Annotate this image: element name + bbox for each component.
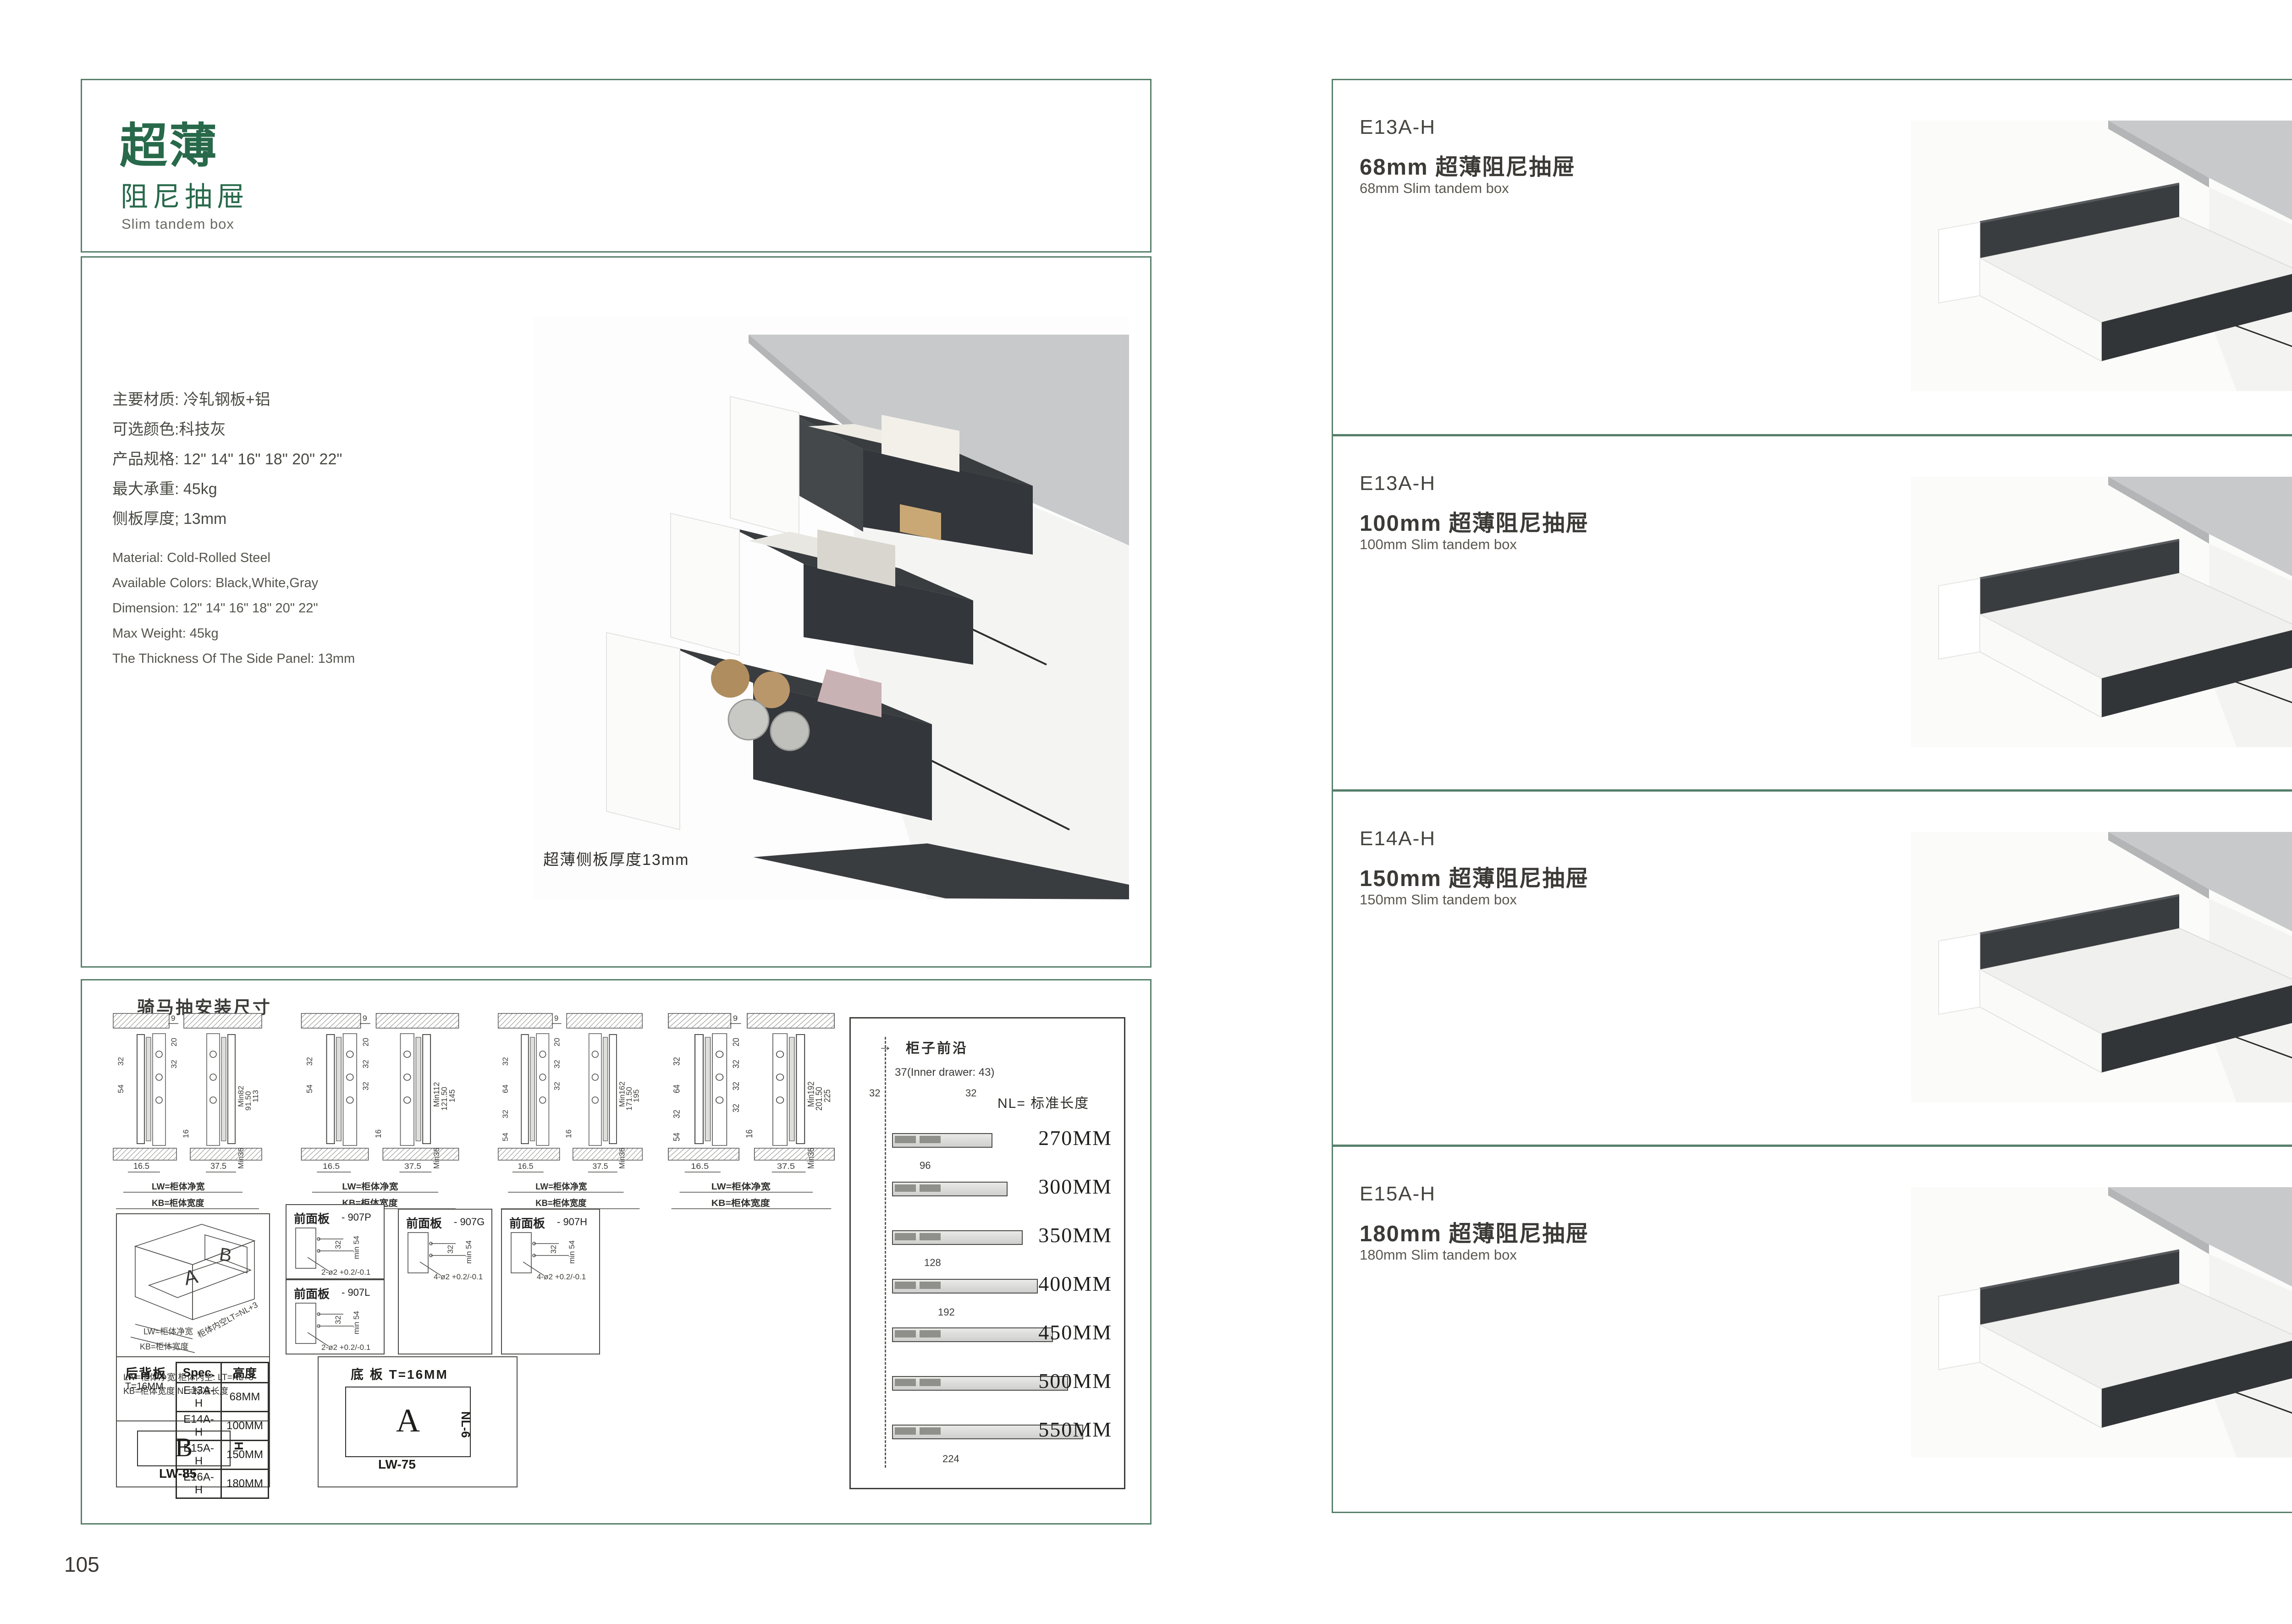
cabinet-wireframe: A B LW=柜体净宽 KB=柜体宽度 柜体内空LT=NL+3 xyxy=(117,1214,267,1370)
cross-section-diagram: 9 20 32 32 32 64 32 54 16 Min162 171.50 … xyxy=(495,1011,646,1222)
svg-text:2-ø2 +0.2/-0.1: 2-ø2 +0.2/-0.1 xyxy=(321,1268,370,1277)
product-section: E15A-H 180mm 超薄阻尼抽屉 180mm Slim tandem bo… xyxy=(1332,1145,2292,1513)
slide-length-value: 300MM xyxy=(1038,1174,1112,1199)
svg-text:16.5: 16.5 xyxy=(323,1161,340,1170)
product-section: E13A-H 68mm 超薄阻尼抽屉 68mm Slim tandem box xyxy=(1332,79,2292,435)
spec-line-en: Material: Cold-Rolled Steel xyxy=(112,545,543,571)
front-panel-code: - 907P xyxy=(342,1211,371,1223)
back-panel-label: 后背板 xyxy=(125,1364,166,1382)
spec-line-en: Max Weight: 45kg xyxy=(112,621,543,646)
page-subtitle-en: Slim tandem box xyxy=(121,216,234,232)
svg-text:4-ø2 +0.2/-0.1: 4-ø2 +0.2/-0.1 xyxy=(434,1272,483,1281)
svg-text:32: 32 xyxy=(501,1057,510,1066)
product-title-en: 180mm Slim tandem box xyxy=(1360,1247,1517,1263)
product-photo-main: 超薄侧板厚度13mm xyxy=(533,316,1129,899)
svg-text:32: 32 xyxy=(553,1060,562,1068)
bottom-panel-label: 底 板 T=16MM xyxy=(351,1365,448,1383)
slide-length-value: 550MM xyxy=(1038,1417,1112,1442)
front-panel-diagram: 前面板 - 907L 32 min 54 2-ø2 +0.2/-0.1 xyxy=(286,1279,385,1354)
front-panel-drawing: 32 min 54 4-ø2 +0.2/-0.1 xyxy=(505,1230,595,1281)
product-title-cn: 180mm 超薄阻尼抽屉 xyxy=(1360,1216,1589,1248)
product-code: E15A-H xyxy=(1360,1183,1436,1206)
spec-line-en: Dimension: 12" 14" 16" 18" 20" 22" xyxy=(112,596,543,621)
drawer-render xyxy=(1911,477,2292,747)
product-title-en: 150mm Slim tandem box xyxy=(1360,892,1517,908)
drawer-render xyxy=(1911,121,2292,391)
svg-text:9: 9 xyxy=(554,1014,558,1023)
product-section: E14A-H 150mm 超薄阻尼抽屉 150mm Slim tandem bo… xyxy=(1332,790,2292,1146)
slide-length-list: 270MM 300MM 350MM 400MM 450MM 500MM xyxy=(865,1119,1112,1459)
left-title-box: 超薄 阻尼抽屉 Slim tandem box xyxy=(81,79,1152,253)
svg-text:32: 32 xyxy=(361,1082,370,1090)
dim-192: 192 xyxy=(938,1306,955,1318)
svg-text:16.5: 16.5 xyxy=(518,1162,533,1171)
slide-length-value: 450MM xyxy=(1038,1320,1112,1344)
svg-text:20: 20 xyxy=(361,1038,370,1046)
svg-text:32: 32 xyxy=(361,1060,370,1068)
front-panel-drawing: 32 min 54 2-ø2 +0.2/-0.1 xyxy=(289,1225,380,1277)
product-image xyxy=(1911,832,2292,1102)
svg-text:195: 195 xyxy=(632,1090,641,1102)
svg-text:32: 32 xyxy=(304,1057,314,1066)
spec-height: 180MM xyxy=(221,1470,268,1498)
arrow-icon: → xyxy=(878,1039,892,1054)
svg-text:KB=柜体宽度: KB=柜体宽度 xyxy=(535,1198,586,1208)
product-title-cn: 150mm 超薄阻尼抽屉 xyxy=(1360,860,1589,893)
slide-length-value: 350MM xyxy=(1038,1223,1112,1247)
front-panel-code: - 907H xyxy=(557,1216,587,1228)
svg-text:113: 113 xyxy=(251,1090,260,1102)
slide-rail-drawing xyxy=(892,1230,1023,1245)
dim-224: 224 xyxy=(942,1453,959,1465)
front-panel-drawing: 32 min 54 2-ø2 +0.2/-0.1 xyxy=(289,1300,380,1352)
spec-height: 68MM xyxy=(221,1383,268,1412)
svg-text:16: 16 xyxy=(374,1129,383,1138)
svg-text:54: 54 xyxy=(304,1085,314,1093)
svg-text:32: 32 xyxy=(672,1057,682,1066)
bottom-panel-box: 底 板 T=16MM A NL-6 LW-75 xyxy=(318,1356,518,1487)
page-number-left: 105 xyxy=(64,1552,99,1577)
svg-text:20: 20 xyxy=(553,1038,562,1046)
cross-section-diagram: 9 20 32 32 32 54 16 Min112 121.50 145 Mi… xyxy=(298,1011,463,1222)
svg-text:9: 9 xyxy=(171,1014,175,1023)
svg-text:A: A xyxy=(182,1265,200,1290)
spec-code: E13A-H xyxy=(176,1383,221,1412)
svg-text:2-ø2 +0.2/-0.1: 2-ø2 +0.2/-0.1 xyxy=(321,1343,370,1352)
svg-text:225: 225 xyxy=(822,1090,832,1102)
svg-text:20: 20 xyxy=(731,1038,741,1046)
slide-length-row: 450MM xyxy=(865,1314,1112,1362)
svg-text:20: 20 xyxy=(170,1038,178,1046)
svg-text:LW=柜体净宽: LW=柜体净宽 xyxy=(711,1181,771,1192)
svg-text:32: 32 xyxy=(672,1110,682,1118)
front-panel-title: 前面板 xyxy=(406,1214,442,1231)
slide-lengths-panel: → 柜子前沿 37(Inner drawer: 43) 32 32 NL= 标准… xyxy=(849,1017,1125,1489)
svg-text:32: 32 xyxy=(731,1060,741,1068)
slide-length-row: 300MM xyxy=(865,1168,1112,1217)
spec-line-cn: 侧板厚度; 13mm xyxy=(112,504,525,534)
specs-chinese: 主要材质: 冷轧钢板+铝可选颜色:科技灰产品规格: 12" 14" 16" 18… xyxy=(112,385,525,534)
svg-text:54: 54 xyxy=(672,1133,682,1141)
nl-dim-label: NL-6 xyxy=(458,1411,473,1438)
svg-text:16: 16 xyxy=(182,1129,190,1138)
product-title-cn: 100mm 超薄阻尼抽屉 xyxy=(1360,505,1589,538)
front-panel-drawing: 32 min 54 4-ø2 +0.2/-0.1 xyxy=(402,1230,492,1281)
svg-text:Min36: Min36 xyxy=(618,1148,627,1169)
page-title: 超薄 xyxy=(120,107,219,176)
svg-text:LW=柜体净宽: LW=柜体净宽 xyxy=(535,1182,587,1191)
svg-text:Min36: Min36 xyxy=(432,1148,441,1169)
spec-line-cn: 最大承重: 45kg xyxy=(112,474,525,504)
product-code: E13A-H xyxy=(1360,116,1436,139)
svg-text:54: 54 xyxy=(116,1085,125,1093)
dim-128: 128 xyxy=(924,1257,941,1269)
svg-text:32: 32 xyxy=(549,1245,558,1254)
svg-text:16.5: 16.5 xyxy=(133,1162,149,1171)
kitchen-drawers-illustration xyxy=(533,316,1129,899)
svg-text:LW=柜体净宽: LW=柜体净宽 xyxy=(342,1182,398,1192)
back-panel-rect: B xyxy=(137,1431,231,1466)
back-panel-box: 后背板 T=16MM Spec. 高度 E13A-H 68MM E14A-H xyxy=(116,1356,270,1487)
spec-line-en: Available Colors: Black,White,Gray xyxy=(112,571,543,596)
drawer-render xyxy=(1911,832,2292,1102)
specs-english: Material: Cold-Rolled SteelAvailable Col… xyxy=(112,545,543,672)
svg-text:32: 32 xyxy=(334,1240,342,1249)
svg-text:32: 32 xyxy=(334,1316,342,1324)
right-page: E13A-H 68mm 超薄阻尼抽屉 68mm Slim tandem box xyxy=(1332,79,2292,1513)
svg-text:16: 16 xyxy=(744,1129,754,1138)
spec-line-en: The Thickness Of The Side Panel: 13mm xyxy=(112,646,543,672)
svg-text:16: 16 xyxy=(564,1129,573,1138)
spec-col-header: Spec. xyxy=(176,1363,221,1383)
left-content-box: 主要材质: 冷轧钢板+铝可选颜色:科技灰产品规格: 12" 14" 16" 18… xyxy=(81,256,1152,968)
drawer-render xyxy=(1911,1187,2292,1458)
bottom-panel-rect: A xyxy=(345,1387,471,1457)
slide-length-row: 400MM xyxy=(865,1265,1112,1314)
slide-rail-drawing xyxy=(892,1279,1038,1294)
svg-text:柜体内空LT=NL+3: 柜体内空LT=NL+3 xyxy=(196,1300,259,1339)
svg-text:KB=柜体宽度: KB=柜体宽度 xyxy=(711,1198,771,1208)
svg-text:32: 32 xyxy=(553,1082,562,1090)
svg-text:37.5: 37.5 xyxy=(210,1162,226,1171)
svg-text:54: 54 xyxy=(501,1133,510,1141)
front-panel-diagram: 前面板 - 907H 32 min 54 4-ø2 +0.2/-0.1 xyxy=(501,1209,600,1354)
spec-line-cn: 主要材质: 冷轧钢板+铝 xyxy=(112,385,525,415)
nl-standard-length-label: NL= 标准长度 xyxy=(997,1092,1089,1112)
slide-rail-drawing xyxy=(892,1182,1008,1196)
height-col-header: 高度 xyxy=(221,1363,268,1383)
slide-length-row: 500MM xyxy=(865,1362,1112,1411)
svg-text:32: 32 xyxy=(501,1110,510,1118)
cross-section-diagram: 9 20 32 32 32 32 64 32 54 16 Min192 201.… xyxy=(664,1011,838,1222)
svg-text:9: 9 xyxy=(363,1013,367,1022)
svg-text:37.5: 37.5 xyxy=(593,1162,608,1171)
front-panel-code: - 907L xyxy=(342,1287,370,1299)
svg-text:4-ø2 +0.2/-0.1: 4-ø2 +0.2/-0.1 xyxy=(537,1272,586,1281)
front-panel-title: 前面板 xyxy=(294,1210,330,1227)
slide-rail-drawing xyxy=(892,1133,992,1148)
product-code: E14A-H xyxy=(1360,827,1436,850)
spec-line-cn: 产品规格: 12" 14" 16" 18" 20" 22" xyxy=(112,445,525,474)
product-image xyxy=(1911,477,2292,747)
left-drawings-box: 骑马抽安装尺寸 xyxy=(81,979,1152,1525)
table-row: E13A-H 68MM xyxy=(176,1383,269,1412)
svg-text:32: 32 xyxy=(170,1060,178,1068)
front-panel-diagram: 前面板 - 907P 32 min 54 2-ø2 +0.2/-0.1 xyxy=(286,1204,385,1279)
width-dim-label: LW-75 xyxy=(378,1457,416,1472)
product-code: E13A-H xyxy=(1360,472,1436,495)
svg-text:min 54: min 54 xyxy=(352,1236,361,1259)
svg-text:64: 64 xyxy=(501,1085,510,1093)
svg-text:Min36: Min36 xyxy=(806,1148,815,1169)
width-dim-label: LW-85 xyxy=(159,1466,197,1481)
cabinet-front-label: 柜子前沿 xyxy=(906,1037,968,1057)
pitch-label: 32 xyxy=(869,1087,880,1099)
slide-length-row: 350MM xyxy=(865,1217,1112,1265)
product-title-en: 100mm Slim tandem box xyxy=(1360,536,1517,553)
svg-text:KB=柜体宽度: KB=柜体宽度 xyxy=(152,1198,205,1208)
svg-text:min 54: min 54 xyxy=(352,1311,361,1334)
svg-text:32: 32 xyxy=(446,1245,455,1254)
back-panel-thickness: T=16MM xyxy=(125,1381,163,1392)
offset-label: 37(Inner drawer: 43) xyxy=(895,1066,994,1079)
product-image xyxy=(1911,1187,2292,1458)
slide-length-value: 270MM xyxy=(1038,1126,1112,1150)
slide-length-row: 550MM xyxy=(865,1411,1112,1459)
product-title-cn: 68mm 超薄阻尼抽屉 xyxy=(1360,149,1576,182)
cross-section-diagram: 9 20 32 32 54 16 Min82 91.50 113 Min36 1… xyxy=(110,1011,265,1222)
dim-96: 96 xyxy=(920,1160,931,1172)
slide-rail-drawing xyxy=(892,1327,1053,1342)
slide-length-value: 500MM xyxy=(1038,1369,1112,1393)
bottom-panel-letter: A xyxy=(346,1387,470,1454)
front-panel-code: - 907G xyxy=(454,1216,485,1228)
photo-caption: 超薄侧板厚度13mm xyxy=(543,847,689,870)
slide-length-value: 400MM xyxy=(1038,1272,1112,1296)
svg-text:37.5: 37.5 xyxy=(404,1161,421,1170)
product-section: E13A-H 100mm 超薄阻尼抽屉 100mm Slim tandem bo… xyxy=(1332,435,2292,791)
svg-text:32: 32 xyxy=(116,1057,125,1066)
page-subtitle: 阻尼抽屉 xyxy=(121,175,249,215)
slide-length-row: 270MM xyxy=(865,1119,1112,1168)
catalog-spread: 超薄 阻尼抽屉 Slim tandem box 主要材质: 冷轧钢板+铝可选颜色… xyxy=(0,0,2292,1624)
product-image xyxy=(1911,121,2292,391)
svg-text:min 54: min 54 xyxy=(464,1240,473,1264)
back-panel-letter: B xyxy=(138,1431,230,1464)
svg-text:min 54: min 54 xyxy=(567,1240,576,1264)
svg-text:16.5: 16.5 xyxy=(691,1162,709,1171)
svg-text:9: 9 xyxy=(733,1014,738,1023)
svg-text:64: 64 xyxy=(672,1085,682,1093)
product-title-en: 68mm Slim tandem box xyxy=(1360,180,1509,197)
height-dim-label: H xyxy=(231,1442,246,1450)
svg-text:37.5: 37.5 xyxy=(777,1162,795,1171)
svg-text:32: 32 xyxy=(731,1104,741,1112)
svg-text:145: 145 xyxy=(447,1090,457,1102)
spec-line-cn: 可选颜色:科技灰 xyxy=(112,415,525,445)
front-panel-title: 前面板 xyxy=(294,1285,330,1302)
svg-text:LW=柜体净宽: LW=柜体净宽 xyxy=(152,1181,205,1192)
front-panel-diagram: 前面板 - 907G 32 min 54 4-ø2 +0.2/-0.1 xyxy=(398,1209,492,1354)
svg-text:32: 32 xyxy=(731,1082,741,1090)
front-panel-title: 前面板 xyxy=(509,1214,545,1231)
svg-text:KB=柜体宽度: KB=柜体宽度 xyxy=(140,1342,189,1351)
pitch-label: 32 xyxy=(965,1087,976,1099)
svg-text:Min36: Min36 xyxy=(237,1148,245,1169)
